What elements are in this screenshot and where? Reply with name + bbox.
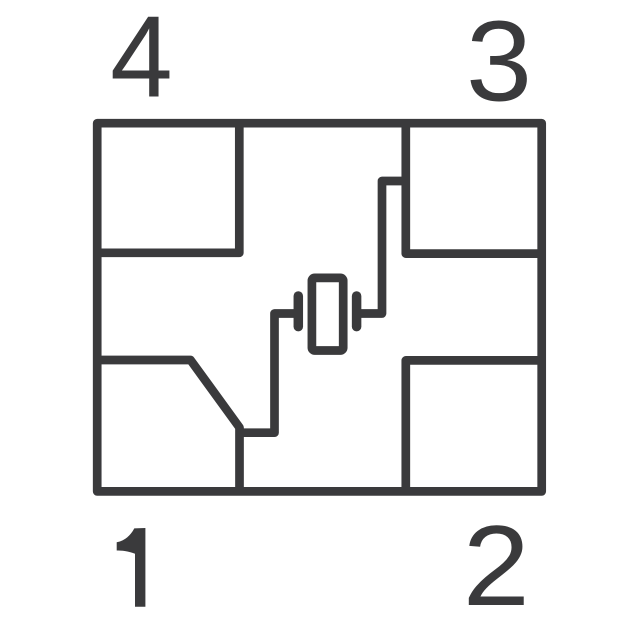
svg-text:3: 3 xyxy=(466,0,532,125)
svg-text:2: 2 xyxy=(463,502,530,630)
svg-text:4: 4 xyxy=(110,0,173,122)
